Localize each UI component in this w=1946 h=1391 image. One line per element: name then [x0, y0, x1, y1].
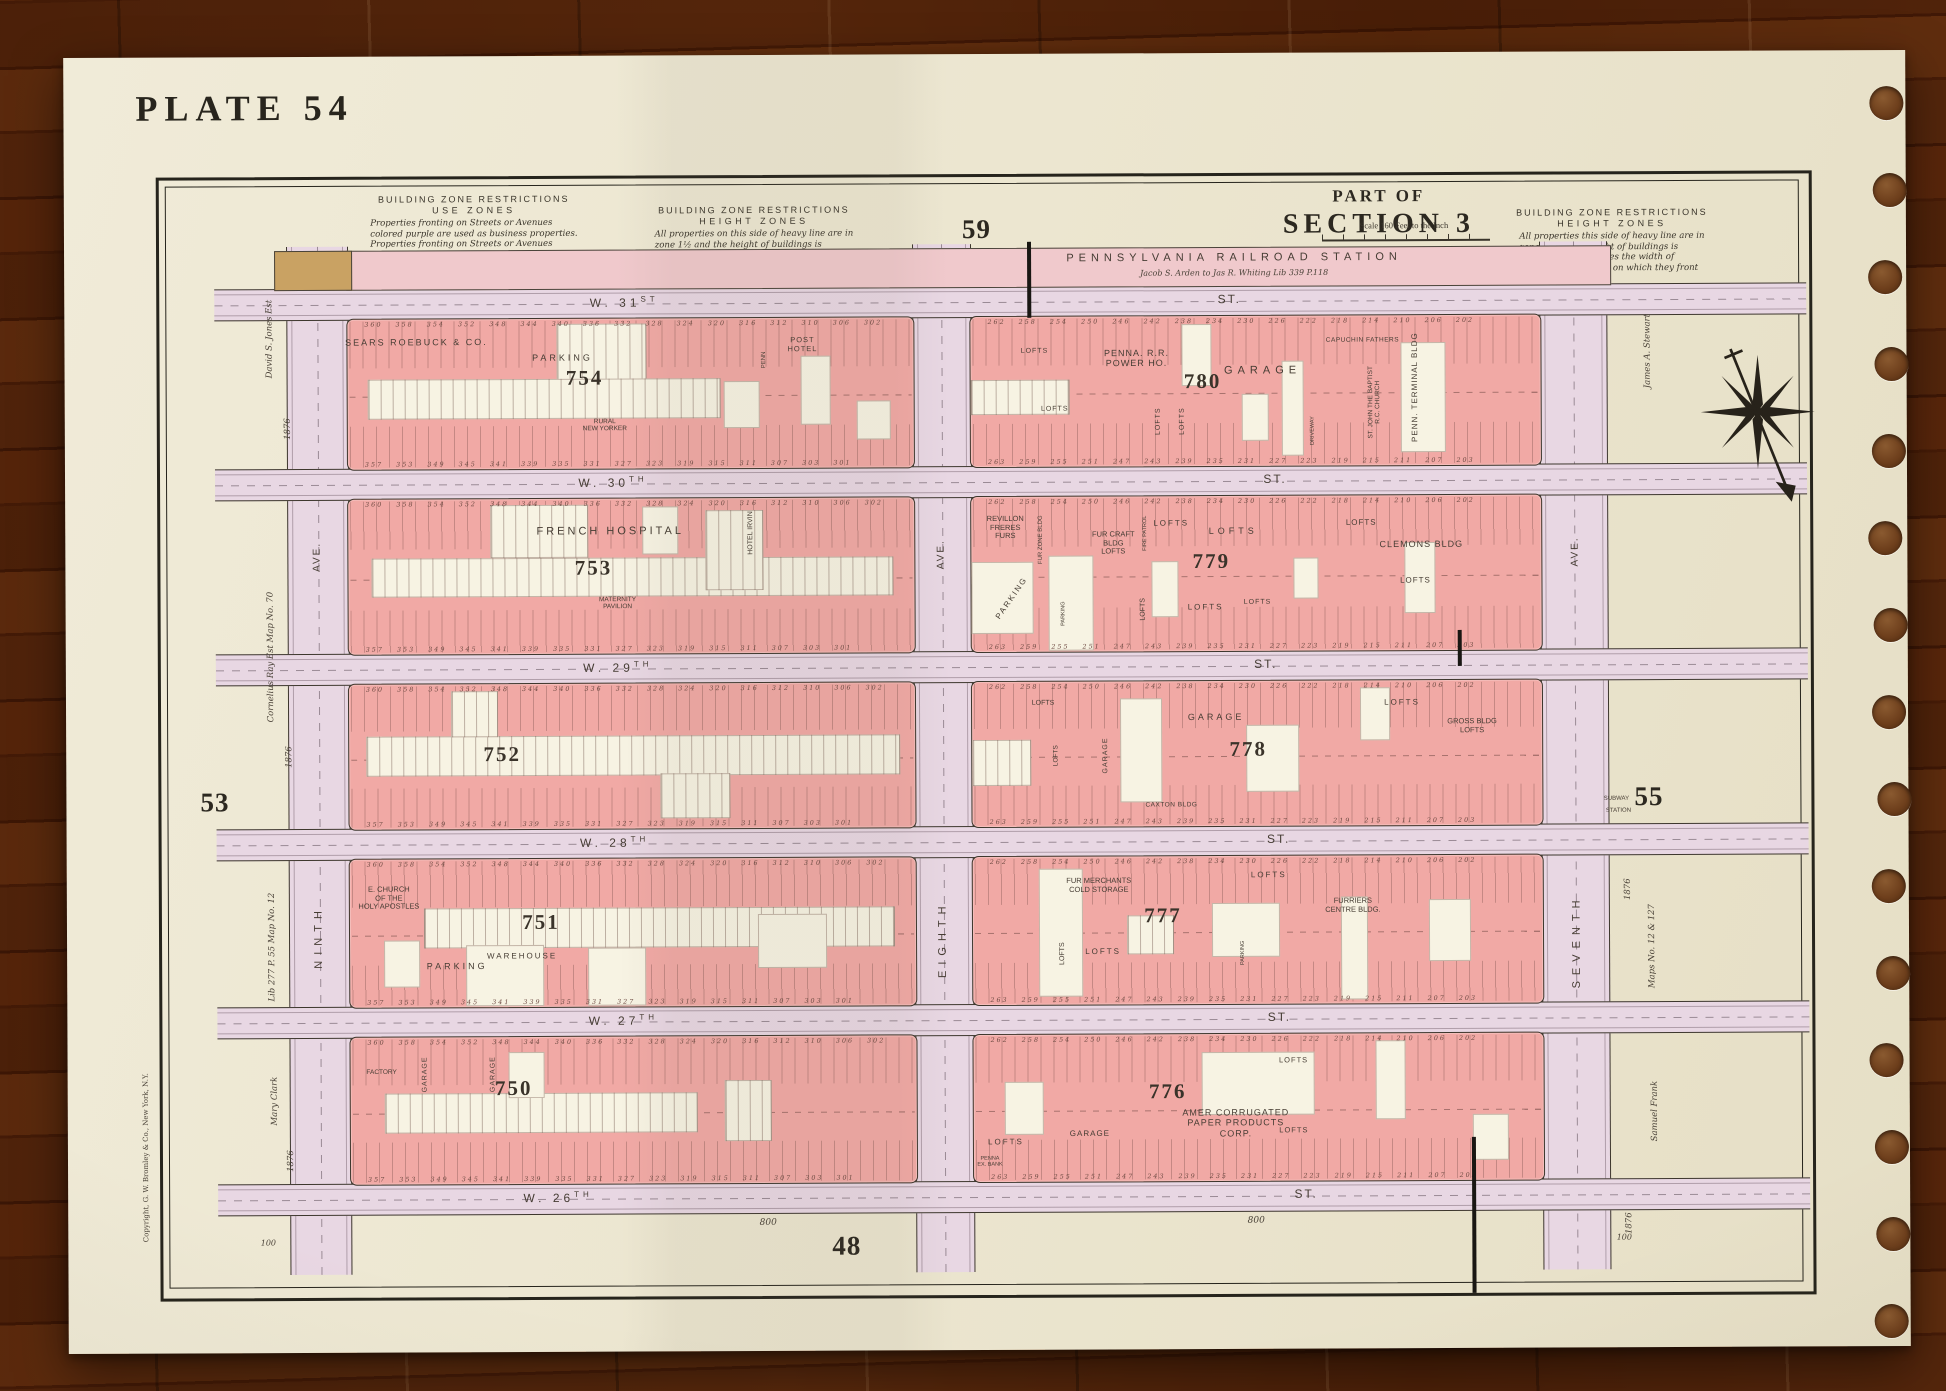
- map-label: 800: [1248, 1216, 1265, 1226]
- lot-number-row: 262 258 254 250 246 242 238 234 230 226 …: [987, 316, 1523, 326]
- punch-hole: [1875, 1304, 1909, 1338]
- map-label: SEVENTH: [1571, 894, 1584, 988]
- street-suffix: ST.: [1268, 1011, 1291, 1025]
- photo-scene: PLATE 54 BUILDING ZONE RESTRICTIONS USE …: [0, 0, 1946, 1391]
- uncolored-lot: [661, 773, 731, 819]
- margin-annotation: Maps No. 12 & 127: [1648, 904, 1658, 988]
- street-name: W. 27TH: [589, 1013, 658, 1029]
- uncolored-lot: [371, 556, 894, 597]
- map-label: HOTEL IRVIN: [747, 511, 755, 555]
- map-label: 779: [1193, 549, 1231, 573]
- copyright-notice: Copyright, G. W. Bromley & Co., New York…: [142, 1073, 151, 1242]
- street-name: W. 30TH: [578, 475, 647, 491]
- map-label: 752: [483, 742, 521, 766]
- map-label: PARKING: [1060, 601, 1066, 625]
- lot-number-row: 360 358 354 352 348 344 340 336 332 328 …: [364, 318, 896, 328]
- uncolored-lot: [971, 562, 1033, 634]
- map-label: GARAGE: [490, 1056, 498, 1092]
- uncolored-lot: [1241, 394, 1269, 441]
- punch-hole: [1877, 782, 1911, 816]
- map-label: 750: [495, 1076, 533, 1100]
- margin-annotation: Samuel Frank: [1651, 1081, 1661, 1142]
- map-label: PARKING: [1240, 941, 1246, 965]
- zone-boundary-line: [1458, 630, 1462, 666]
- map-label: FUR ZONE BLDG: [1038, 515, 1045, 564]
- map-label: LOFTS: [1032, 700, 1055, 708]
- lot-number-row: 360 358 354 352 348 344 340 336 332 328 …: [366, 683, 898, 693]
- map-label: LOFTS: [1384, 698, 1420, 707]
- punch-hole: [1875, 1130, 1909, 1164]
- city-block-751: 360 358 354 352 348 344 340 336 332 328 …: [349, 856, 918, 1008]
- city-block-750: 360 358 354 352 348 344 340 336 332 328 …: [349, 1034, 918, 1185]
- map-label: FRENCH HOSPITAL: [536, 525, 684, 538]
- margin-annotation: 1876: [284, 418, 294, 440]
- map-label: CAPUCHIN FATHERS: [1326, 336, 1399, 344]
- map-label: 754: [566, 366, 604, 390]
- map-label: 800: [760, 1218, 777, 1228]
- map-label: 751: [522, 910, 560, 934]
- uncolored-lot: [757, 914, 827, 968]
- map-label: NINTH: [313, 905, 326, 969]
- lot-number-row: 262 258 254 250 246 242 238 234 230 226 …: [988, 496, 1524, 506]
- uncolored-lot: [367, 378, 720, 419]
- punch-hole: [1873, 173, 1907, 207]
- map-label: PENN. TERMINAL BLDG: [1410, 332, 1420, 442]
- map-label: FACTORY: [366, 1069, 397, 1077]
- lot-number-row: 263 259 255 251 247 243 239 235 231 227 …: [991, 1171, 1527, 1181]
- lot-number-row: 262 258 254 250 246 242 238 234 230 226 …: [989, 681, 1525, 691]
- lot-number-row: 360 358 354 352 348 344 340 336 332 328 …: [367, 858, 899, 868]
- city-block-753: 360 358 354 352 348 344 340 336 332 328 …: [347, 496, 916, 655]
- map-label: LOFTS: [1021, 348, 1049, 356]
- map-label: FIRE PATROL: [1142, 516, 1148, 551]
- map-label: LOFTS: [1244, 599, 1272, 607]
- map-label: GARAGE: [1188, 712, 1245, 723]
- lot-number-row: 263 259 255 251 247 243 239 235 231 227 …: [990, 994, 1526, 1004]
- map-label: FUR MERCHANTSCOLD STORAGE: [1066, 877, 1131, 895]
- map-label: PARKING: [532, 353, 593, 364]
- uncolored-lot: [1151, 561, 1179, 617]
- compass-rose-icon: [1682, 342, 1833, 513]
- lot-number-row: 262 258 254 250 246 242 238 234 230 226 …: [990, 856, 1526, 866]
- map-label: LOFTS: [1400, 575, 1431, 584]
- uncolored-lot: [1005, 1082, 1044, 1136]
- avenue-band: [912, 244, 975, 1272]
- uncolored-lot: [1429, 899, 1471, 960]
- street-suffix: ST.: [1263, 473, 1286, 487]
- punch-hole: [1876, 956, 1910, 990]
- map-label: LOFTS: [1155, 407, 1163, 435]
- map-label: PENNAEX. BANK: [977, 1156, 1002, 1169]
- uncolored-lot: [384, 941, 420, 988]
- map-label: 777: [1144, 903, 1182, 927]
- map-canvas: W. 31STST.W. 30THST.W. 29THST.W. 28THST.…: [63, 50, 1911, 1354]
- avenue-band: [286, 247, 352, 1275]
- map-label: MATERNITYPAVILION: [599, 596, 636, 611]
- margin-annotation: David S. Jones Est: [265, 300, 275, 379]
- uncolored-lot: [385, 1092, 698, 1134]
- railroad-station-strip: [346, 245, 1611, 291]
- map-label: GROSS BLDGLOFTS: [1447, 717, 1497, 734]
- street-name: W. 26TH: [523, 1190, 592, 1206]
- margin-annotation: 1876: [1624, 878, 1634, 900]
- map-label: SUBWAY: [1604, 796, 1629, 803]
- map-label: AVE.: [1570, 536, 1582, 566]
- street-suffix: ST.: [1218, 293, 1241, 307]
- punch-hole: [1868, 521, 1902, 555]
- map-label: 100: [261, 1239, 276, 1248]
- unrestricted-parcel: [274, 251, 352, 291]
- map-label: EIGHTH: [937, 900, 950, 978]
- map-label: FUR CRAFTBLDGLOFTS: [1092, 530, 1135, 556]
- street-name: W. 31ST: [590, 295, 659, 311]
- uncolored-lot: [972, 740, 1031, 786]
- uncolored-lot: [724, 381, 760, 428]
- map-label: WAREHOUSE: [487, 951, 557, 960]
- uncolored-lot: [1473, 1114, 1509, 1160]
- punch-hole: [1872, 434, 1906, 468]
- margin-annotation: 1876: [1625, 1212, 1635, 1234]
- street-name: W. 28TH: [580, 835, 649, 851]
- map-label: POSTHOTEL: [787, 336, 817, 353]
- map-label: SEARS ROEBUCK & CO.: [345, 337, 488, 348]
- map-label: GARAGE: [1102, 737, 1110, 773]
- lot-number-row: 357 353 349 345 341 339 335 331 327 323 …: [366, 818, 898, 828]
- street-suffix: ST.: [1267, 833, 1290, 847]
- lot-number-row: 357 353 349 345 341 339 335 331 327 323 …: [367, 996, 899, 1006]
- street-name: W. 29TH: [583, 660, 652, 676]
- map-label: 776: [1149, 1079, 1187, 1103]
- uncolored-lot: [1401, 342, 1446, 452]
- map-label: CLEMONS BLDG: [1380, 539, 1464, 550]
- uncolored-lot: [724, 1080, 772, 1141]
- map-label: LOFTS: [1346, 518, 1377, 527]
- uncolored-lot: [451, 691, 498, 737]
- uncolored-lot: [1375, 1041, 1406, 1120]
- map-label: LOFTS: [1179, 407, 1187, 435]
- map-label: FURRIERSCENTRE BLDG.: [1325, 897, 1381, 914]
- zone-boundary-line: [1472, 1137, 1476, 1293]
- lot-number-row: 357 353 349 345 341 339 335 331 327 323 …: [366, 643, 898, 653]
- map-label: GARAGE: [422, 1056, 430, 1092]
- map-label: LOFTS: [988, 1137, 1024, 1146]
- map-label: AVE.: [312, 542, 324, 572]
- map-label: PARKING: [427, 961, 488, 972]
- map-label: GARAGE: [1224, 364, 1301, 377]
- lot-number-row: 357 353 349 345 341 339 335 331 327 323 …: [365, 458, 897, 468]
- uncolored-lot: [366, 735, 900, 777]
- map-label: LOFTS: [1279, 1056, 1308, 1065]
- map-label: Jacob S. Arden to Jas R. Whiting Lib 339…: [1140, 268, 1328, 278]
- map-label: LOFTS: [1052, 745, 1060, 766]
- lot-number-row: 263 259 255 251 247 243 239 235 231 227 …: [988, 456, 1524, 466]
- lot-number-row: 263 259 255 251 247 243 239 235 231 227 …: [990, 816, 1526, 826]
- map-label: LOFTS: [1209, 526, 1258, 537]
- map-label: LOFTS: [1085, 947, 1121, 956]
- map-label: STATION: [1606, 808, 1631, 815]
- zone-boundary-line: [1027, 242, 1031, 318]
- map-label: LOFTS: [1188, 602, 1224, 611]
- margin-annotation: Lib 277 P. 55 Map No. 12: [268, 893, 278, 1002]
- map-label: LOFTS: [1251, 870, 1287, 879]
- avenue-band: [1539, 241, 1611, 1269]
- punch-hole: [1874, 608, 1908, 642]
- map-label: DRIVEWAY: [1310, 416, 1316, 445]
- map-label: LOFTS: [1041, 406, 1069, 414]
- map-label: 753: [575, 556, 613, 580]
- punch-hole: [1868, 260, 1902, 294]
- lot-number-row: 360 358 354 352 348 344 340 336 332 328 …: [365, 498, 897, 508]
- margin-annotation: Cornelius Ray Est Map No. 70: [267, 592, 277, 723]
- uncolored-lot: [1360, 687, 1391, 740]
- punch-hole: [1874, 347, 1908, 381]
- map-label: AMER CORRUGATEDPAPER PRODUCTSCORP.: [1182, 1107, 1289, 1138]
- punch-hole: [1876, 1217, 1910, 1251]
- city-block-752: 360 358 354 352 348 344 340 336 332 328 …: [348, 681, 917, 830]
- lot-number-row: 263 259 255 251 247 243 239 235 231 227 …: [989, 641, 1525, 651]
- map-label: AVE.: [936, 539, 948, 569]
- lot-number-row: 262 258 254 250 246 242 238 234 230 226 …: [991, 1034, 1527, 1044]
- map-label: LOFTS: [1153, 519, 1189, 528]
- map-label: 780: [1184, 369, 1222, 393]
- map-label: REVILLONFRERESFURS: [987, 515, 1024, 541]
- city-block-780: 262 258 254 250 246 242 238 234 230 226 …: [969, 314, 1542, 468]
- map-label: ST. JOHN THE BAPTISTR.C. CHURCH: [1367, 366, 1382, 439]
- lot-number-row: 357 353 349 345 341 339 335 331 327 323 …: [368, 1173, 900, 1183]
- punch-hole: [1872, 695, 1906, 729]
- uncolored-lot: [1048, 555, 1093, 650]
- margin-annotation: 1876: [285, 746, 295, 768]
- map-label: CAXTON BLDG: [1145, 801, 1197, 809]
- margin-annotation: James A. Stewart: [1643, 314, 1653, 388]
- street-suffix: ST.: [1254, 658, 1277, 672]
- margin-annotation: 1876: [287, 1150, 297, 1172]
- uncolored-lot: [1293, 558, 1318, 599]
- lot-number-row: 360 358 354 352 348 344 340 336 332 328 …: [367, 1036, 899, 1046]
- margin-annotation: Mary Clark: [271, 1077, 281, 1126]
- map-label: LOFTS: [1140, 598, 1148, 621]
- street-suffix: ST.: [1294, 1188, 1317, 1202]
- map-label: GARAGE: [1070, 1129, 1110, 1138]
- map-label: PENNSYLVANIA RAILROAD STATION: [1066, 251, 1402, 265]
- uncolored-lot: [1120, 699, 1162, 803]
- map-label: PENN: [761, 352, 768, 369]
- map-label: 778: [1229, 737, 1267, 761]
- atlas-sheet: PLATE 54 BUILDING ZONE RESTRICTIONS USE …: [63, 50, 1911, 1354]
- map-label: E. CHURCHOF THEHOLY APOSTLES: [358, 886, 419, 912]
- punch-hole: [1872, 869, 1906, 903]
- map-label: LOFTS: [1059, 942, 1067, 965]
- map-label: PENNA. R.R.POWER HO.: [1104, 348, 1169, 369]
- uncolored-lot: [800, 355, 831, 425]
- map-label: LOFTS: [1279, 1126, 1308, 1135]
- uncolored-lot: [857, 400, 890, 440]
- map-label: RURALNEW YORKER: [583, 418, 627, 433]
- punch-hole: [1869, 1043, 1903, 1077]
- punch-hole: [1869, 86, 1903, 120]
